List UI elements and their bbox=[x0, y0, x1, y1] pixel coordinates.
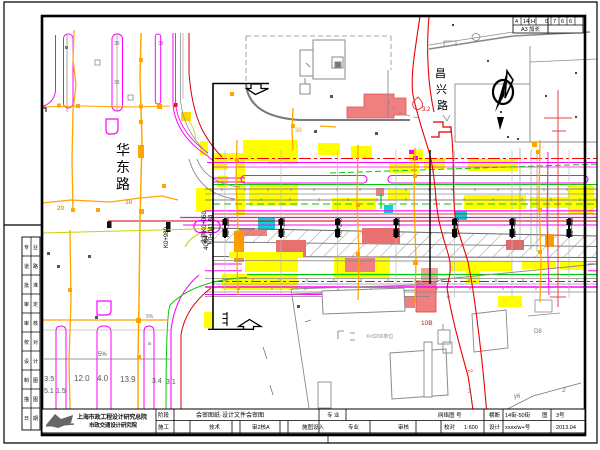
svg-text:D8: D8 bbox=[534, 329, 542, 335]
svg-text:20: 20 bbox=[57, 205, 65, 212]
svg-text:加长: 加长 bbox=[529, 25, 541, 33]
svg-text:38: 38 bbox=[125, 199, 133, 206]
svg-text:3.5: 3.5 bbox=[44, 374, 54, 383]
svg-text:华: 华 bbox=[116, 142, 130, 158]
svg-text:K0+420: K0+420 bbox=[512, 218, 518, 237]
svg-text:兴: 兴 bbox=[436, 83, 447, 96]
svg-text:横断: 横断 bbox=[489, 411, 501, 419]
svg-text:阶段: 阶段 bbox=[158, 411, 170, 419]
svg-text:路: 路 bbox=[116, 176, 130, 192]
svg-text:审2核A: 审2核A bbox=[252, 423, 270, 431]
svg-text:图: 图 bbox=[33, 397, 38, 403]
svg-text:专业: 专业 bbox=[348, 423, 360, 431]
svg-text:K0+480: K0+480 bbox=[569, 218, 575, 237]
svg-text:6: 6 bbox=[569, 19, 572, 25]
svg-text:路: 路 bbox=[437, 99, 448, 112]
svg-text:K0+180: K0+180 bbox=[281, 218, 287, 237]
svg-text:校: 校 bbox=[24, 339, 29, 346]
svg-text:4Q84: 4Q84 bbox=[204, 235, 210, 250]
svg-text:2013.04: 2013.04 bbox=[556, 425, 576, 431]
svg-text:业: 业 bbox=[33, 244, 38, 251]
svg-text:14街-50街: 14街-50街 bbox=[505, 411, 531, 419]
svg-text:1:600: 1:600 bbox=[464, 425, 478, 431]
svg-text:K0+240: K0+240 bbox=[338, 218, 344, 237]
svg-text:昌: 昌 bbox=[435, 67, 446, 80]
svg-text:设: 设 bbox=[24, 358, 29, 365]
svg-text:K0+120: K0+120 bbox=[225, 218, 231, 237]
svg-text:5.1: 5.1 bbox=[44, 388, 54, 395]
svg-text:13.9: 13.9 bbox=[120, 375, 136, 384]
svg-text:描: 描 bbox=[24, 396, 29, 403]
svg-text:审核: 审核 bbox=[398, 423, 410, 431]
svg-text:审: 审 bbox=[24, 301, 29, 308]
svg-text:5%: 5% bbox=[146, 314, 154, 320]
svg-text:审: 审 bbox=[24, 320, 29, 327]
svg-text:4: 4 bbox=[515, 19, 518, 25]
svg-text:专 业: 专 业 bbox=[327, 411, 340, 419]
svg-text:制: 制 bbox=[24, 377, 29, 384]
svg-text:技术: 技术 bbox=[209, 423, 221, 431]
svg-text:10B: 10B bbox=[421, 320, 433, 327]
svg-text:X=3200单位: X=3200单位 bbox=[366, 333, 393, 340]
svg-text:设计: 设计 bbox=[489, 423, 501, 431]
svg-text:4.0: 4.0 bbox=[97, 374, 109, 383]
svg-text:日: 日 bbox=[24, 416, 29, 422]
svg-text:期: 期 bbox=[33, 416, 38, 422]
svg-text:市政交通设计研究院: 市政交通设计研究院 bbox=[89, 421, 137, 429]
svg-text:3.2: 3.2 bbox=[422, 107, 431, 113]
svg-text:会审图纸·设计文件会审图: 会审图纸·设计文件会审图 bbox=[196, 411, 264, 419]
svg-text:路: 路 bbox=[33, 263, 38, 270]
svg-text:K0+360: K0+360 bbox=[455, 218, 461, 237]
svg-text:核: 核 bbox=[33, 320, 38, 327]
svg-text:xxxx/w+号: xxxx/w+号 bbox=[505, 424, 531, 431]
svg-text:3.1: 3.1 bbox=[166, 379, 176, 386]
svg-text:批: 批 bbox=[24, 282, 29, 289]
svg-text:6: 6 bbox=[561, 19, 564, 25]
svg-text:网络图 号: 网络图 号 bbox=[438, 411, 462, 419]
svg-text:12.0: 12.0 bbox=[74, 374, 90, 383]
svg-text:图: 图 bbox=[33, 378, 38, 384]
svg-text:H: H bbox=[531, 19, 535, 25]
svg-text:东: 东 bbox=[116, 159, 130, 175]
svg-text:a: a bbox=[148, 341, 151, 347]
svg-text:38: 38 bbox=[114, 80, 120, 86]
svg-text:计: 计 bbox=[33, 358, 38, 365]
svg-text:准: 准 bbox=[33, 282, 38, 289]
svg-text:专: 专 bbox=[24, 244, 29, 251]
svg-text:7: 7 bbox=[553, 19, 556, 25]
svg-text:1.5: 1.5 bbox=[56, 388, 66, 395]
svg-text:K0+300: K0+300 bbox=[396, 218, 402, 237]
svg-text:K0+980: K0+980 bbox=[164, 226, 170, 248]
svg-text:y6: y6 bbox=[514, 394, 521, 400]
svg-text:0: 0 bbox=[545, 19, 548, 25]
svg-text:14: 14 bbox=[523, 19, 529, 25]
svg-text:3.4: 3.4 bbox=[152, 378, 162, 385]
svg-text:道: 道 bbox=[24, 263, 29, 270]
svg-text:2: 2 bbox=[562, 387, 566, 394]
svg-text:38: 38 bbox=[114, 41, 120, 47]
svg-text:38: 38 bbox=[295, 128, 302, 134]
svg-text:施工: 施工 bbox=[158, 423, 170, 431]
svg-text:图: 图 bbox=[542, 411, 548, 419]
svg-text:5%: 5% bbox=[98, 352, 107, 358]
svg-text:定: 定 bbox=[33, 301, 38, 308]
svg-text:校对: 校对 bbox=[444, 423, 456, 431]
svg-text:上海市政工程设计研究总院: 上海市政工程设计研究总院 bbox=[77, 413, 147, 421]
svg-text:3号: 3号 bbox=[556, 412, 565, 419]
svg-text:A3: A3 bbox=[521, 27, 528, 33]
svg-text:施图设入: 施图设入 bbox=[302, 423, 325, 431]
svg-text:38: 38 bbox=[158, 41, 164, 47]
svg-text:对: 对 bbox=[33, 339, 38, 346]
